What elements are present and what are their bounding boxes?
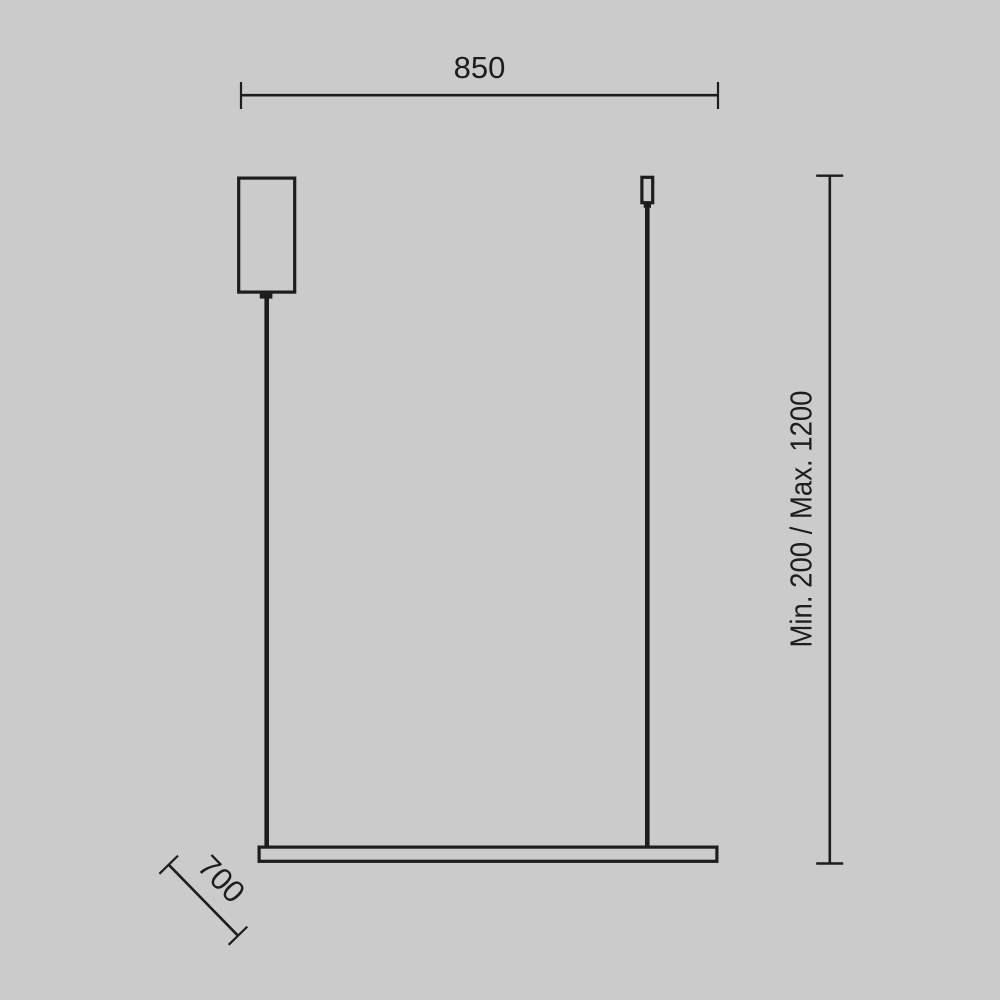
svg-text:850: 850 bbox=[454, 50, 506, 85]
svg-text:Min. 200 / Max. 1200: Min. 200 / Max. 1200 bbox=[784, 391, 819, 648]
